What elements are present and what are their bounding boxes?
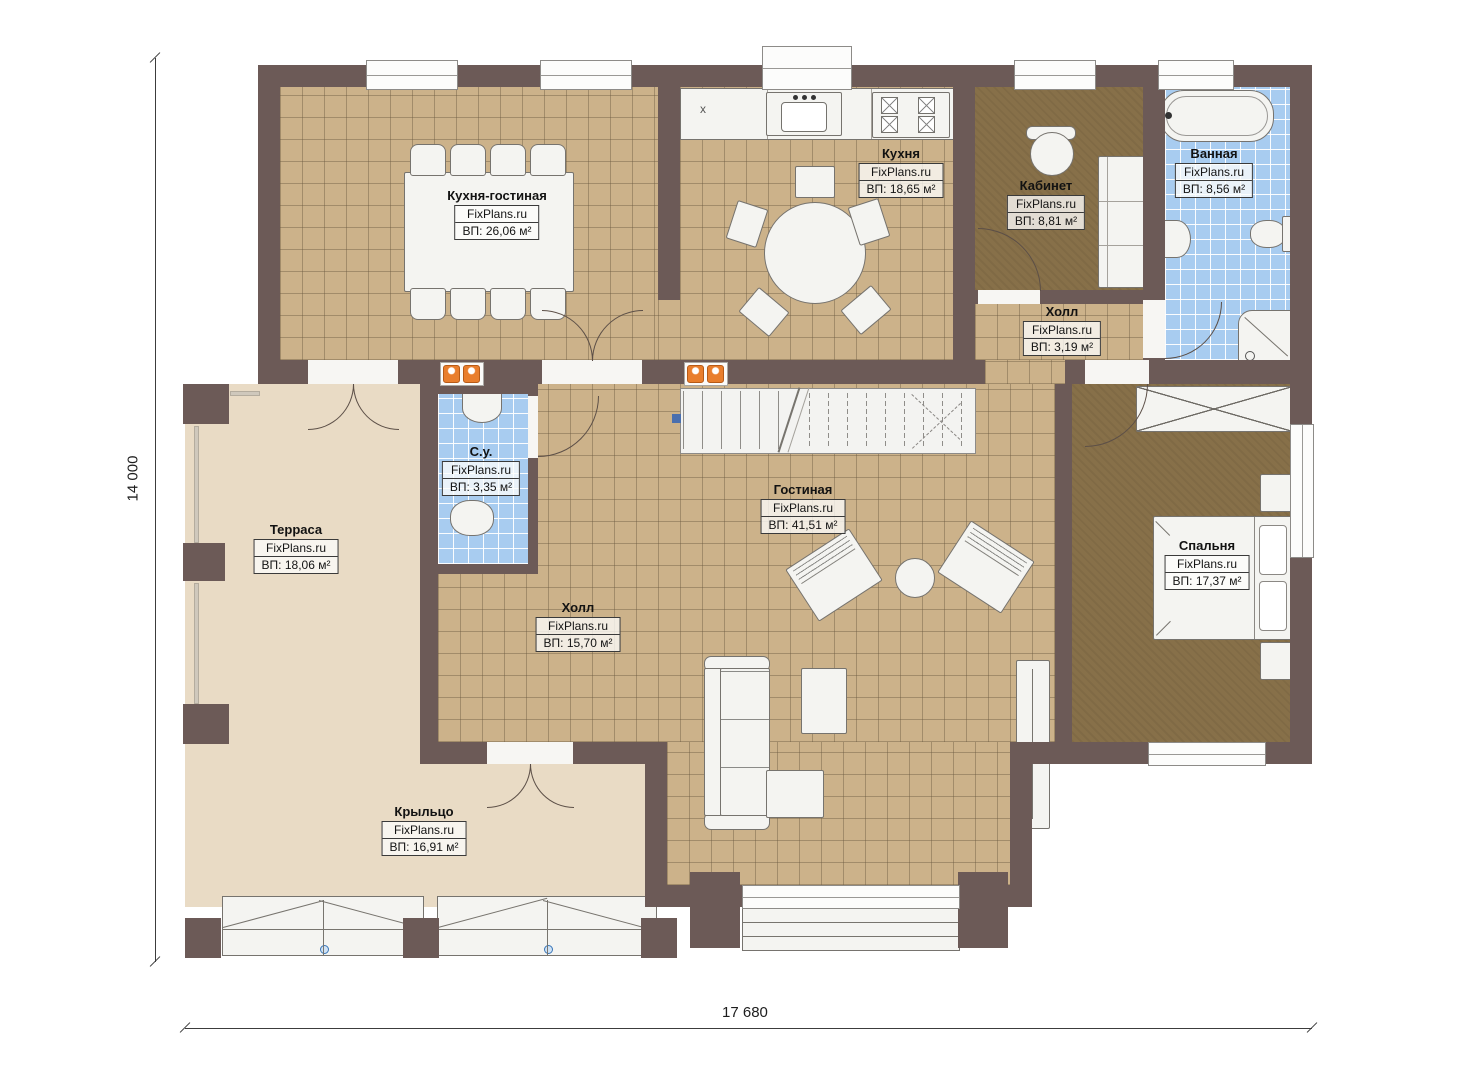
bay-window xyxy=(742,885,960,909)
room-label-wc: С.у. FixPlans.ru ВП: 3,35 м² xyxy=(442,444,520,496)
room-area: ВП: 8,56 м² xyxy=(1176,180,1252,197)
room-info-box: FixPlans.ru ВП: 3,35 м² xyxy=(442,461,520,496)
window xyxy=(366,60,458,90)
bathtub-inner xyxy=(1166,96,1268,136)
room-info-box: FixPlans.ru ВП: 8,81 м² xyxy=(1007,195,1085,230)
step-chevron xyxy=(438,898,547,928)
cabinet-line xyxy=(1107,157,1108,287)
door-opening xyxy=(1143,300,1165,358)
room-name: Крыльцо xyxy=(382,804,467,819)
room-area: ВП: 3,19 м² xyxy=(1024,338,1100,355)
room-name: Терраса xyxy=(254,522,339,537)
staircase xyxy=(680,388,976,454)
faucet-dot xyxy=(811,95,816,100)
wall-wc-bottom xyxy=(428,564,538,574)
cabinet-line xyxy=(1099,201,1145,202)
step-marker xyxy=(320,945,329,954)
brand-watermark: FixPlans.ru xyxy=(255,540,338,556)
room-area: ВП: 3,35 м² xyxy=(443,478,519,495)
wall-porch-right xyxy=(645,742,667,907)
bathtub xyxy=(1160,90,1274,142)
room-label-hall: Холл FixPlans.ru ВП: 15,70 м² xyxy=(536,600,621,652)
toilet xyxy=(1250,220,1286,248)
porch-pillar xyxy=(185,918,221,958)
pillow xyxy=(1259,525,1287,575)
room-name: Кухня-гостиная xyxy=(447,188,547,203)
room-label-kitchen: Кухня FixPlans.ru ВП: 18,65 м² xyxy=(859,146,944,198)
porch-steps xyxy=(222,896,424,956)
room-label-office: Кабинет FixPlans.ru ВП: 8,81 м² xyxy=(1007,178,1085,230)
porch-pillar xyxy=(403,918,439,958)
room-name: Ванная xyxy=(1175,146,1253,161)
wall-middle xyxy=(258,360,1312,384)
window xyxy=(1158,60,1234,90)
wall-right xyxy=(1290,65,1312,764)
room-area: ВП: 16,91 м² xyxy=(383,838,466,855)
room-area: ВП: 26,06 м² xyxy=(456,222,539,239)
terrace-pillar xyxy=(183,384,229,424)
faucet-dot xyxy=(1165,112,1172,119)
kitchen-sink xyxy=(766,92,842,136)
room-area: ВП: 41,51 м² xyxy=(762,516,845,533)
brand-watermark: FixPlans.ru xyxy=(537,618,620,634)
kitchen-bay-window xyxy=(762,46,852,90)
nightstand xyxy=(1260,474,1292,512)
sink-bowl xyxy=(781,102,827,132)
sofa-seat xyxy=(720,668,770,816)
shower xyxy=(1238,310,1294,366)
dimension-line-horizontal xyxy=(185,1028,1312,1029)
room-area: ВП: 15,70 м² xyxy=(537,634,620,651)
room-label-bathroom: Ванная FixPlans.ru ВП: 8,56 м² xyxy=(1175,146,1253,198)
room-area: ВП: 8,81 м² xyxy=(1008,212,1084,229)
step-chevron xyxy=(543,900,652,930)
sofa-chaise xyxy=(766,770,824,818)
kitchen-chair xyxy=(795,166,835,198)
dining-chair xyxy=(530,144,566,176)
passage-opening xyxy=(658,300,680,360)
radiator-icon xyxy=(687,365,704,383)
step-chevron xyxy=(223,900,324,928)
room-label-porch: Крыльцо FixPlans.ru ВП: 16,91 м² xyxy=(382,804,467,856)
stair-treads-dashed xyxy=(809,391,971,449)
brand-watermark: FixPlans.ru xyxy=(762,500,845,516)
step-marker xyxy=(544,945,553,954)
brand-watermark: FixPlans.ru xyxy=(1166,556,1249,572)
room-label-hall-small: Холл FixPlans.ru ВП: 3,19 м² xyxy=(1023,304,1101,356)
wall-bay-right xyxy=(1010,742,1032,907)
porch-steps xyxy=(437,896,657,956)
room-name: Спальня xyxy=(1165,538,1250,553)
office-cabinet xyxy=(1098,156,1146,288)
blanket-fold xyxy=(1156,621,1171,636)
side-table xyxy=(895,558,935,598)
room-info-box: FixPlans.ru ВП: 18,06 м² xyxy=(254,539,339,574)
room-info-box: FixPlans.ru ВП: 15,70 м² xyxy=(536,617,621,652)
room-label-kitchen-living: Кухня-гостиная FixPlans.ru ВП: 26,06 м² xyxy=(447,188,547,240)
room-area: ВП: 18,65 м² xyxy=(860,180,943,197)
wc-toilet xyxy=(450,500,494,536)
brand-watermark: FixPlans.ru xyxy=(1176,164,1252,180)
dining-chair xyxy=(410,144,446,176)
door-opening xyxy=(978,290,1040,304)
door-opening xyxy=(1085,360,1149,384)
room-name: Кабинет xyxy=(1007,178,1085,193)
dining-chair xyxy=(490,288,526,320)
stair-start-marker xyxy=(672,414,681,423)
terrace-pillar xyxy=(183,543,225,581)
door-opening xyxy=(528,396,538,458)
bedroom-bottom-window xyxy=(1148,742,1266,766)
dining-chair xyxy=(450,288,486,320)
brand-watermark: FixPlans.ru xyxy=(860,164,943,180)
terrace-railing xyxy=(194,426,199,543)
brand-watermark: FixPlans.ru xyxy=(443,462,519,478)
room-info-box: FixPlans.ru ВП: 41,51 м² xyxy=(761,499,846,534)
room-name: Гостиная xyxy=(761,482,846,497)
burner-icon xyxy=(918,116,935,133)
bay-pillar xyxy=(690,872,740,948)
radiator-icon xyxy=(463,365,480,383)
bay-pillar xyxy=(958,872,1008,948)
radiator-icon xyxy=(443,365,460,383)
room-area: ВП: 18,06 м² xyxy=(255,556,338,573)
burner-icon xyxy=(918,97,935,114)
room-label-terrace: Терраса FixPlans.ru ВП: 18,06 м² xyxy=(254,522,339,574)
brand-watermark: FixPlans.ru xyxy=(1024,322,1100,338)
burner-icon xyxy=(881,116,898,133)
step-edge xyxy=(743,922,959,923)
door-opening xyxy=(308,360,398,384)
stair-treads xyxy=(683,391,791,449)
terrace-railing xyxy=(194,583,199,704)
room-label-bedroom: Спальня FixPlans.ru ВП: 17,37 м² xyxy=(1165,538,1250,590)
cabinet-line xyxy=(1099,245,1145,246)
step-edge xyxy=(743,936,959,937)
window xyxy=(1014,60,1096,90)
dining-chair xyxy=(450,144,486,176)
wall-left xyxy=(258,65,280,384)
dimension-width: 17 680 xyxy=(722,1004,768,1021)
terrace-railing xyxy=(230,391,260,396)
floor-plan: x xyxy=(0,0,1474,1080)
room-label-living: Гостиная FixPlans.ru ВП: 41,51 м² xyxy=(761,482,846,534)
window xyxy=(540,60,632,90)
radiator xyxy=(684,362,728,386)
terrace-pillar xyxy=(183,704,229,744)
entry-door-opening xyxy=(487,742,573,764)
room-info-box: FixPlans.ru ВП: 8,56 м² xyxy=(1175,163,1253,198)
office-chair xyxy=(1030,132,1074,176)
wall-office-divider xyxy=(953,65,975,360)
passage-opening xyxy=(985,360,1065,384)
room-info-box: FixPlans.ru ВП: 16,91 м² xyxy=(382,821,467,856)
pillow xyxy=(1259,581,1287,631)
bay-steps xyxy=(742,907,960,951)
room-name: С.у. xyxy=(442,444,520,459)
step-center-line xyxy=(547,900,548,955)
dining-chair xyxy=(490,144,526,176)
faucet-dot xyxy=(793,95,798,100)
brand-watermark: FixPlans.ru xyxy=(1008,196,1084,212)
coffee-table xyxy=(801,668,847,734)
porch-pillar xyxy=(641,918,677,958)
dining-chair xyxy=(410,288,446,320)
wall-terrace xyxy=(420,384,438,742)
dimension-height: 14 000 xyxy=(124,456,141,502)
brand-watermark: FixPlans.ru xyxy=(456,206,539,222)
step-center-line xyxy=(323,900,324,955)
room-name: Кухня xyxy=(859,146,944,161)
bedroom-side-window xyxy=(1290,424,1314,558)
room-info-box: FixPlans.ru ВП: 26,06 м² xyxy=(455,205,540,240)
room-name: Холл xyxy=(1023,304,1101,319)
room-name: Холл xyxy=(536,600,621,615)
brand-watermark: FixPlans.ru xyxy=(383,822,466,838)
wardrobe xyxy=(1136,386,1292,432)
faucet-dot xyxy=(802,95,807,100)
radiator-icon xyxy=(707,365,724,383)
blanket-fold xyxy=(1155,521,1170,536)
stove xyxy=(872,92,950,138)
wc-sink xyxy=(462,394,502,423)
radiator xyxy=(440,362,484,386)
burner-icon xyxy=(881,97,898,114)
room-info-box: FixPlans.ru ВП: 3,19 м² xyxy=(1023,321,1101,356)
room-info-box: FixPlans.ru ВП: 18,65 м² xyxy=(859,163,944,198)
pillow-divider xyxy=(1254,517,1255,639)
nightstand xyxy=(1260,642,1292,680)
door-opening xyxy=(542,360,642,384)
bathroom-sink xyxy=(1163,220,1191,258)
room-info-box: FixPlans.ru ВП: 17,37 м² xyxy=(1165,555,1250,590)
dimension-line-vertical xyxy=(155,58,156,962)
room-area: ВП: 17,37 м² xyxy=(1166,572,1249,589)
wall-bedroom-left xyxy=(1055,384,1072,742)
counter-corner-mark: x xyxy=(700,102,706,116)
